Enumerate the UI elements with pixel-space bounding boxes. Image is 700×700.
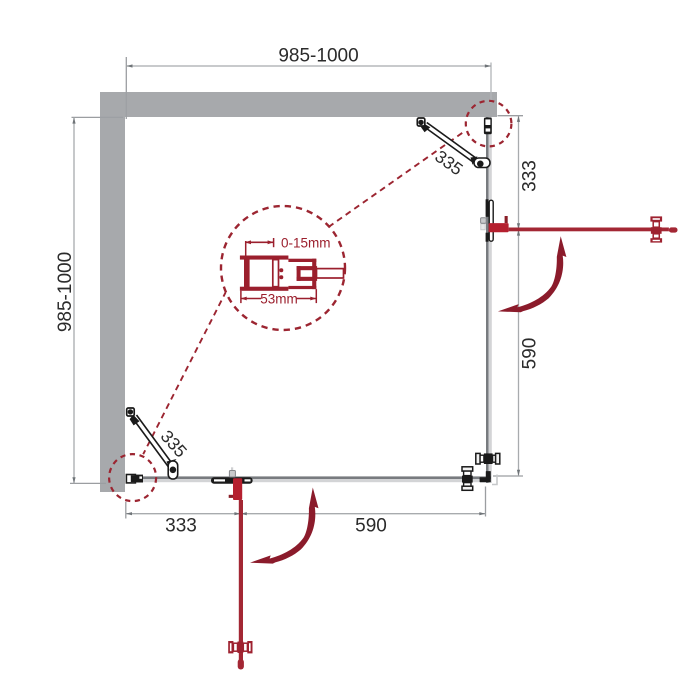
svg-text:985-1000: 985-1000 — [278, 46, 358, 67]
svg-text:590: 590 — [355, 516, 387, 537]
svg-text:590: 590 — [520, 338, 541, 370]
svg-text:0-15mm: 0-15mm — [281, 235, 331, 250]
svg-text:333: 333 — [520, 160, 541, 192]
svg-text:333: 333 — [165, 516, 197, 537]
svg-text:985-1000: 985-1000 — [55, 252, 76, 332]
svg-text:53mm: 53mm — [260, 292, 298, 307]
